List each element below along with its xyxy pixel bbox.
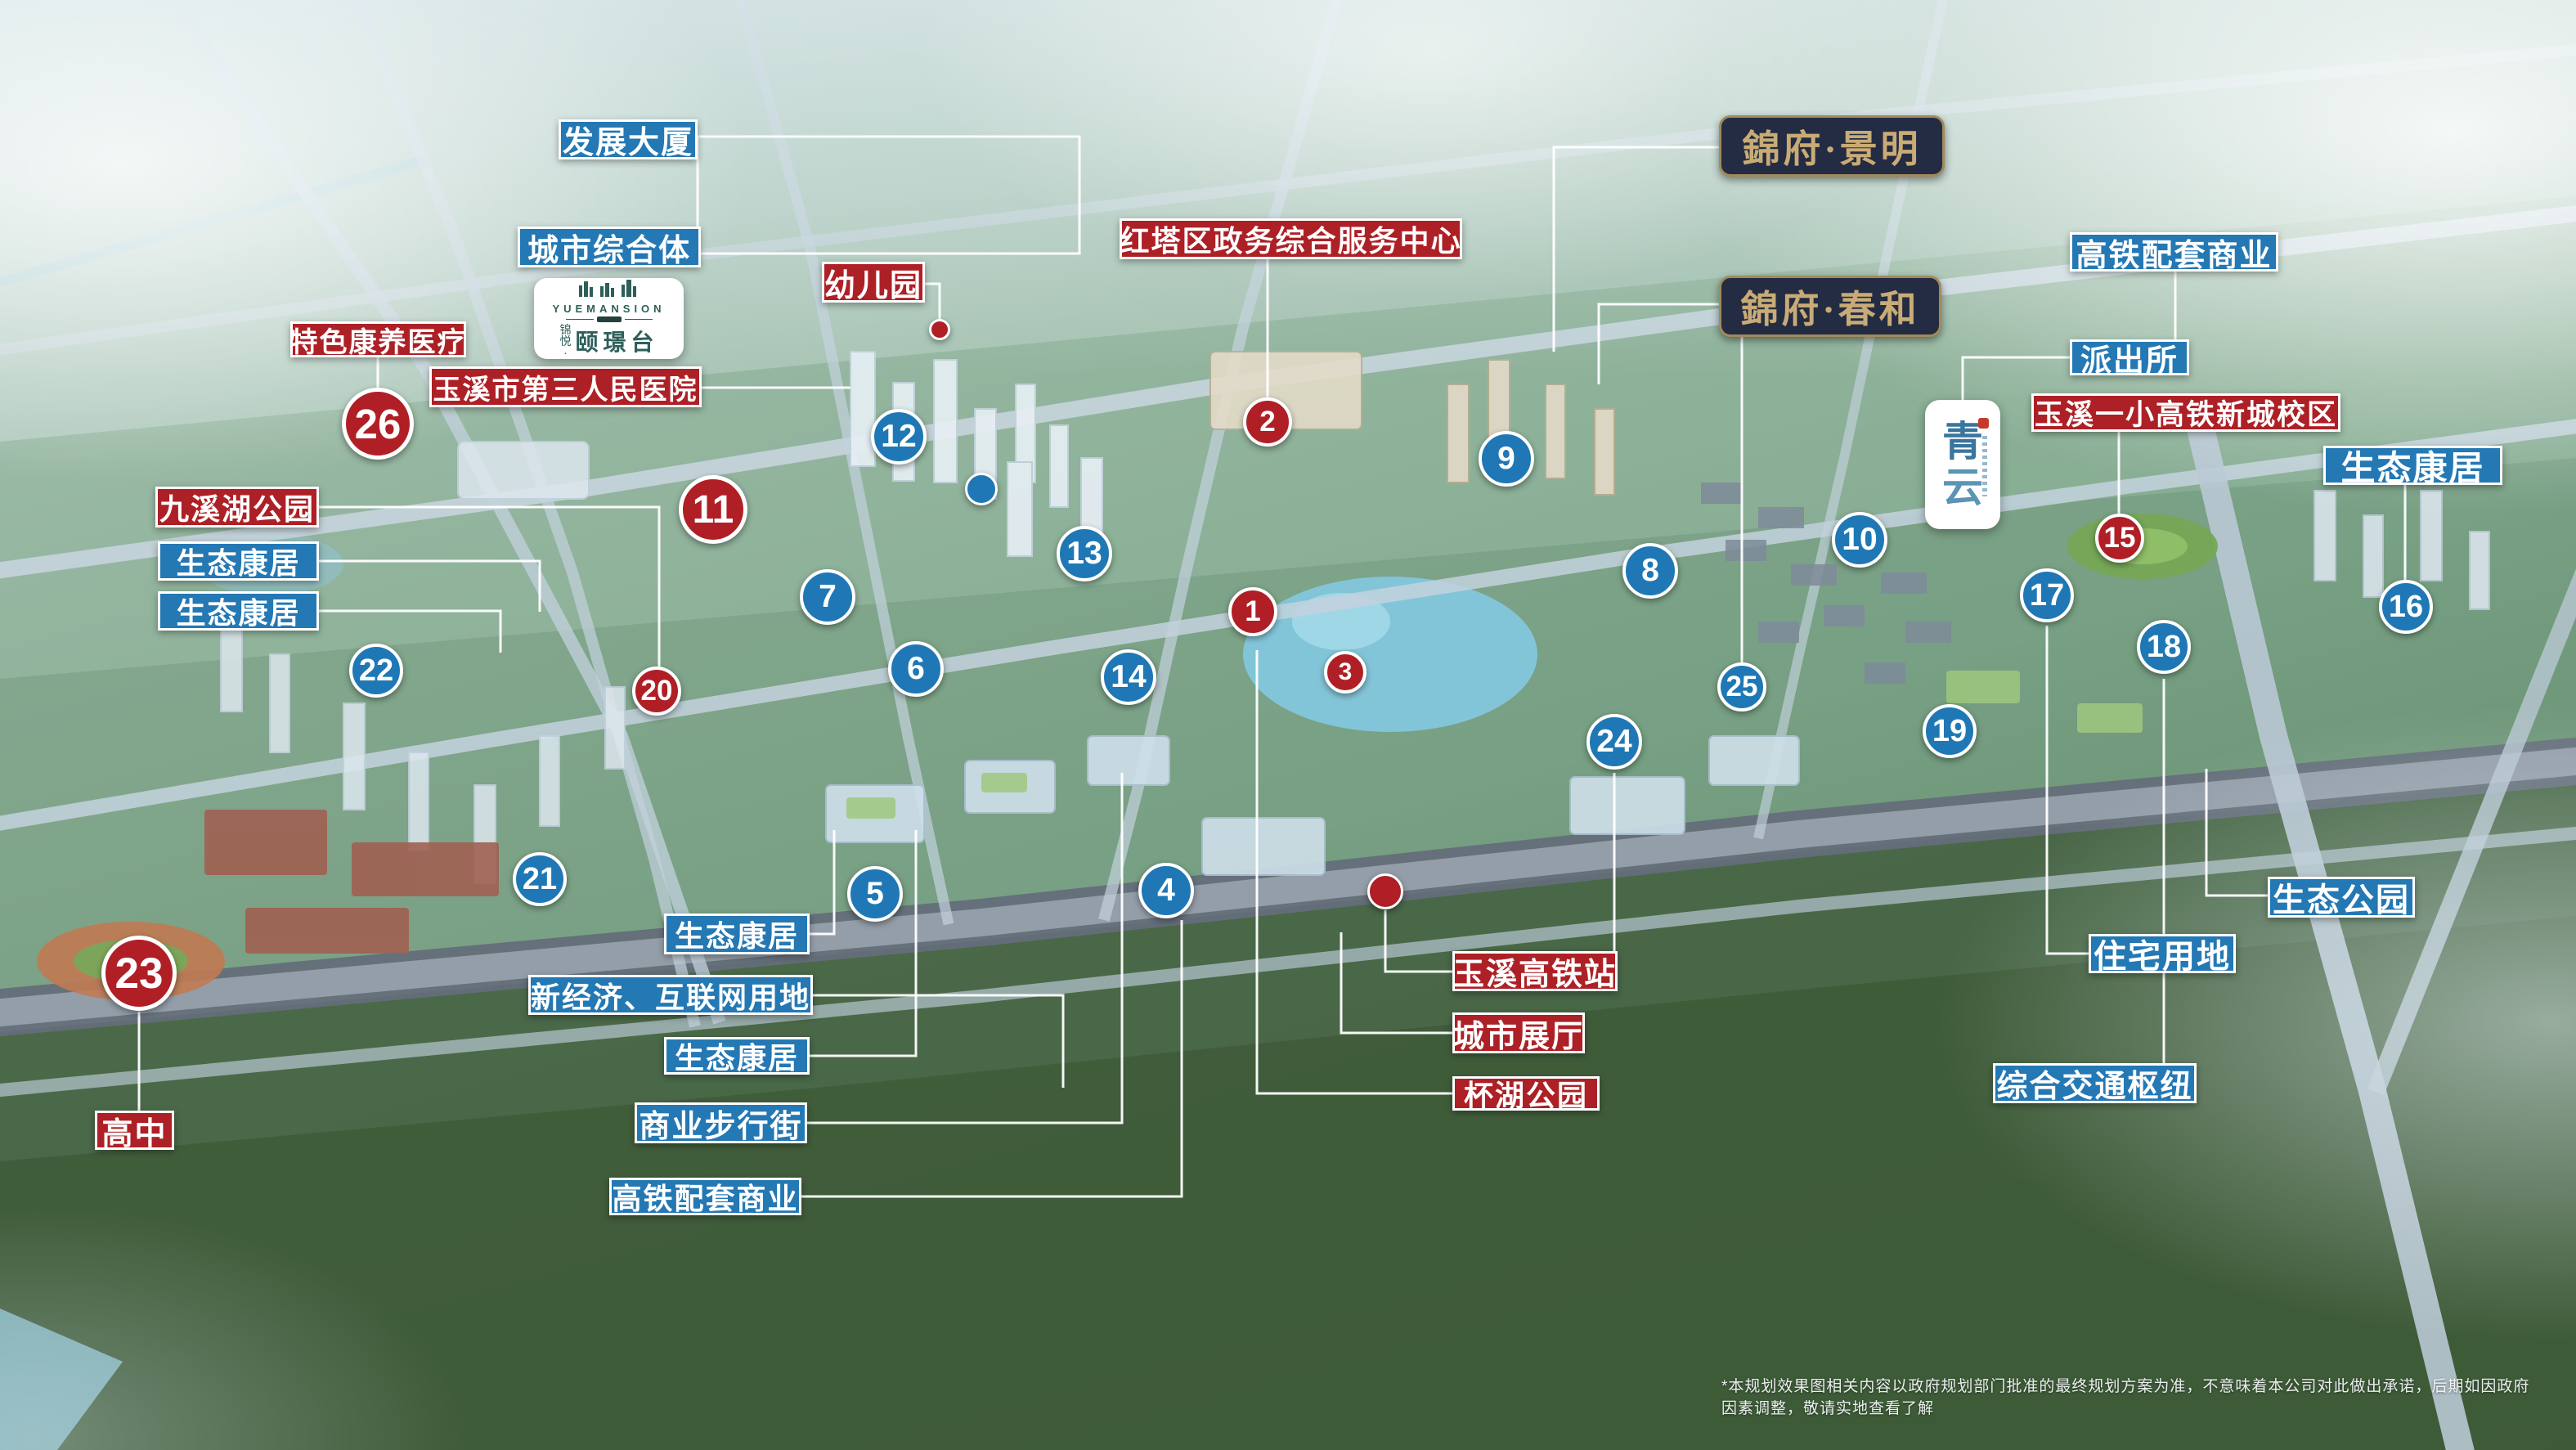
qingyun-char-2: 云 — [1942, 465, 1983, 510]
yuemansion-cn-name: 锦悦· 颐璟台 — [559, 324, 658, 358]
leader-jinfu-chunhe — [1599, 304, 1719, 384]
map-label-城市展厅: 城市展厅 — [1452, 1012, 1585, 1053]
map-marker-14: 14 — [1101, 649, 1156, 705]
project-box-錦府·春和: 錦府·春和 — [1719, 276, 1941, 337]
disclaimer-text: *本规划效果图相关内容以政府规划部门批准的最终规划方案为准，不意味着本公司对此做… — [1721, 1374, 2539, 1418]
map-label-幼儿园: 幼儿园 — [822, 262, 925, 303]
leader-eco-left-2 — [319, 611, 500, 653]
map-marker-2: 2 — [1243, 397, 1292, 447]
map-label-商业步行街: 商业步行街 — [635, 1102, 807, 1143]
leader-city-hall — [1341, 932, 1452, 1033]
map-label-生态康居: 生态康居 — [2323, 446, 2502, 485]
qingyun-logo: 青 云 — [1925, 400, 2000, 529]
map-marker-5: 5 — [847, 866, 903, 922]
map-label-高铁配套商业: 高铁配套商业 — [609, 1178, 801, 1215]
map-marker-23: 23 — [101, 936, 177, 1011]
zone-outline — [698, 137, 1079, 254]
yuemansion-logo: YUEMANSION 锦悦· 颐璟台 — [534, 278, 684, 359]
map-label-生态康居: 生态康居 — [158, 591, 319, 631]
map-label-生态康居: 生态康居 — [158, 541, 319, 581]
map-marker-19: 19 — [1923, 704, 1977, 758]
map-marker-11: 11 — [679, 475, 747, 544]
map-marker-8: 8 — [1622, 543, 1678, 599]
logo-divider — [566, 316, 653, 322]
leader-eco-left-1 — [319, 561, 540, 612]
map-marker-24: 24 — [1586, 714, 1642, 770]
map-label-派出所: 派出所 — [2070, 339, 2189, 375]
project-box-錦府·景明: 錦府·景明 — [1719, 115, 1945, 177]
map-marker-13: 13 — [1057, 526, 1112, 581]
map-marker-4: 4 — [1138, 863, 1194, 918]
yuemansion-wordmark: YUEMANSION — [552, 303, 665, 315]
qingyun-side-text — [1982, 436, 1987, 496]
map-label-发展大厦: 发展大厦 — [559, 119, 698, 159]
leader-hsr-commerce-bottom — [801, 920, 1182, 1196]
map-marker-12: 12 — [871, 409, 927, 465]
map-label-生态康居: 生态康居 — [664, 1037, 810, 1075]
map-label-红塔区政务综合服务中心: 红塔区政务综合服务中心 — [1120, 218, 1462, 259]
masterplan-map: 发展大厦城市综合体生态康居生态康居生态康居新经济、互联网用地生态康居商业步行街高… — [0, 0, 2576, 1450]
map-label-综合交通枢纽: 综合交通枢纽 — [1993, 1063, 2197, 1103]
map-marker-21: 21 — [513, 852, 567, 906]
map-label-高中: 高中 — [95, 1111, 174, 1150]
leader-new-economy — [813, 995, 1063, 1088]
yuemansion-building-icon — [574, 279, 644, 300]
map-label-玉溪高铁站: 玉溪高铁站 — [1452, 951, 1618, 991]
map-label-杯湖公园: 杯湖公园 — [1452, 1076, 1600, 1111]
map-label-玉溪市第三人民医院: 玉溪市第三人民医院 — [429, 366, 702, 407]
map-label-生态康居: 生态康居 — [664, 914, 810, 954]
map-label-高铁配套商业: 高铁配套商业 — [2070, 232, 2278, 272]
leader-hsr-station — [1385, 910, 1452, 972]
map-marker-26: 26 — [342, 388, 414, 460]
map-marker-6: 6 — [888, 641, 944, 697]
leader-residential-land — [2047, 626, 2089, 954]
leader-eco-bottom-1 — [810, 830, 834, 934]
map-marker-16: 16 — [2379, 580, 2433, 634]
map-marker-10: 10 — [1832, 512, 1887, 568]
map-marker-7: 7 — [800, 569, 855, 625]
map-dot — [1367, 873, 1403, 909]
map-marker-15: 15 — [2095, 514, 2144, 563]
map-marker-3: 3 — [1324, 651, 1367, 694]
map-label-城市综合体: 城市综合体 — [518, 227, 701, 267]
qingyun-seal-icon — [1978, 418, 1989, 429]
map-marker-17: 17 — [2020, 568, 2074, 622]
map-marker-18: 18 — [2137, 620, 2191, 674]
map-dot — [929, 319, 950, 340]
map-label-九溪湖公园: 九溪湖公园 — [155, 487, 319, 527]
leader-eco-bottom-2 — [810, 830, 916, 1056]
map-marker-20: 20 — [632, 667, 681, 716]
map-label-玉溪一小高铁新城校区: 玉溪一小高铁新城校区 — [2031, 393, 2340, 432]
leader-pedestrian-street — [807, 773, 1122, 1123]
map-marker-22: 22 — [349, 644, 403, 698]
leader-beihu-park — [1257, 650, 1452, 1093]
map-label-生态公园: 生态公园 — [2268, 877, 2415, 918]
map-marker-9: 9 — [1479, 431, 1534, 487]
map-label-特色康养医疗: 特色康养医疗 — [290, 321, 466, 357]
leader-eco-park — [2206, 769, 2268, 896]
map-dot — [965, 473, 998, 505]
map-label-住宅用地: 住宅用地 — [2089, 934, 2236, 973]
leader-jinfu-jingming — [1554, 147, 1719, 352]
map-marker-1: 1 — [1228, 587, 1277, 636]
map-label-新经济、互联网用地: 新经济、互联网用地 — [528, 975, 813, 1015]
qingyun-char-1: 青 — [1942, 419, 1983, 465]
map-marker-25: 25 — [1717, 662, 1766, 712]
